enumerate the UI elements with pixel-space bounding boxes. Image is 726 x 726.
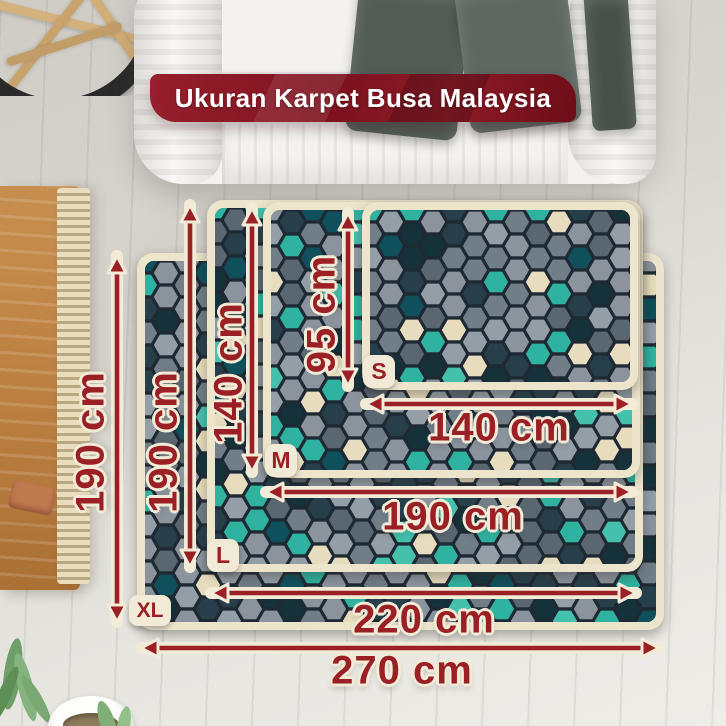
dimension-label-m-height: 140 cm [207,302,252,444]
dimension-label-l-height: 190 cm [142,371,187,513]
size-badge-m: M [265,444,297,477]
dimension-label-xl-height: 190 cm [69,371,114,513]
rug-s-pattern [370,210,630,382]
title-ribbon: Ukuran Karpet Busa Malaysia [150,74,576,122]
size-badge-l: L [207,539,239,572]
product-size-infographic: 190 cm 190 cm 140 cm 95 cm 140 cm 190 cm… [0,0,726,726]
sofa-pillow [583,0,637,131]
page-title: Ukuran Karpet Busa Malaysia [175,83,551,114]
dimension-label-xl-width: 270 cm [331,649,473,694]
size-badge-s: S [363,355,395,388]
rug-s [362,202,638,390]
dimension-label-s-width: 140 cm [428,406,570,451]
dimension-label-s-height: 95 cm [300,255,345,373]
dimension-label-l-width: 220 cm [353,598,495,643]
size-badge-xl: XL [129,595,171,626]
dimension-label-m-width: 190 cm [382,495,524,540]
